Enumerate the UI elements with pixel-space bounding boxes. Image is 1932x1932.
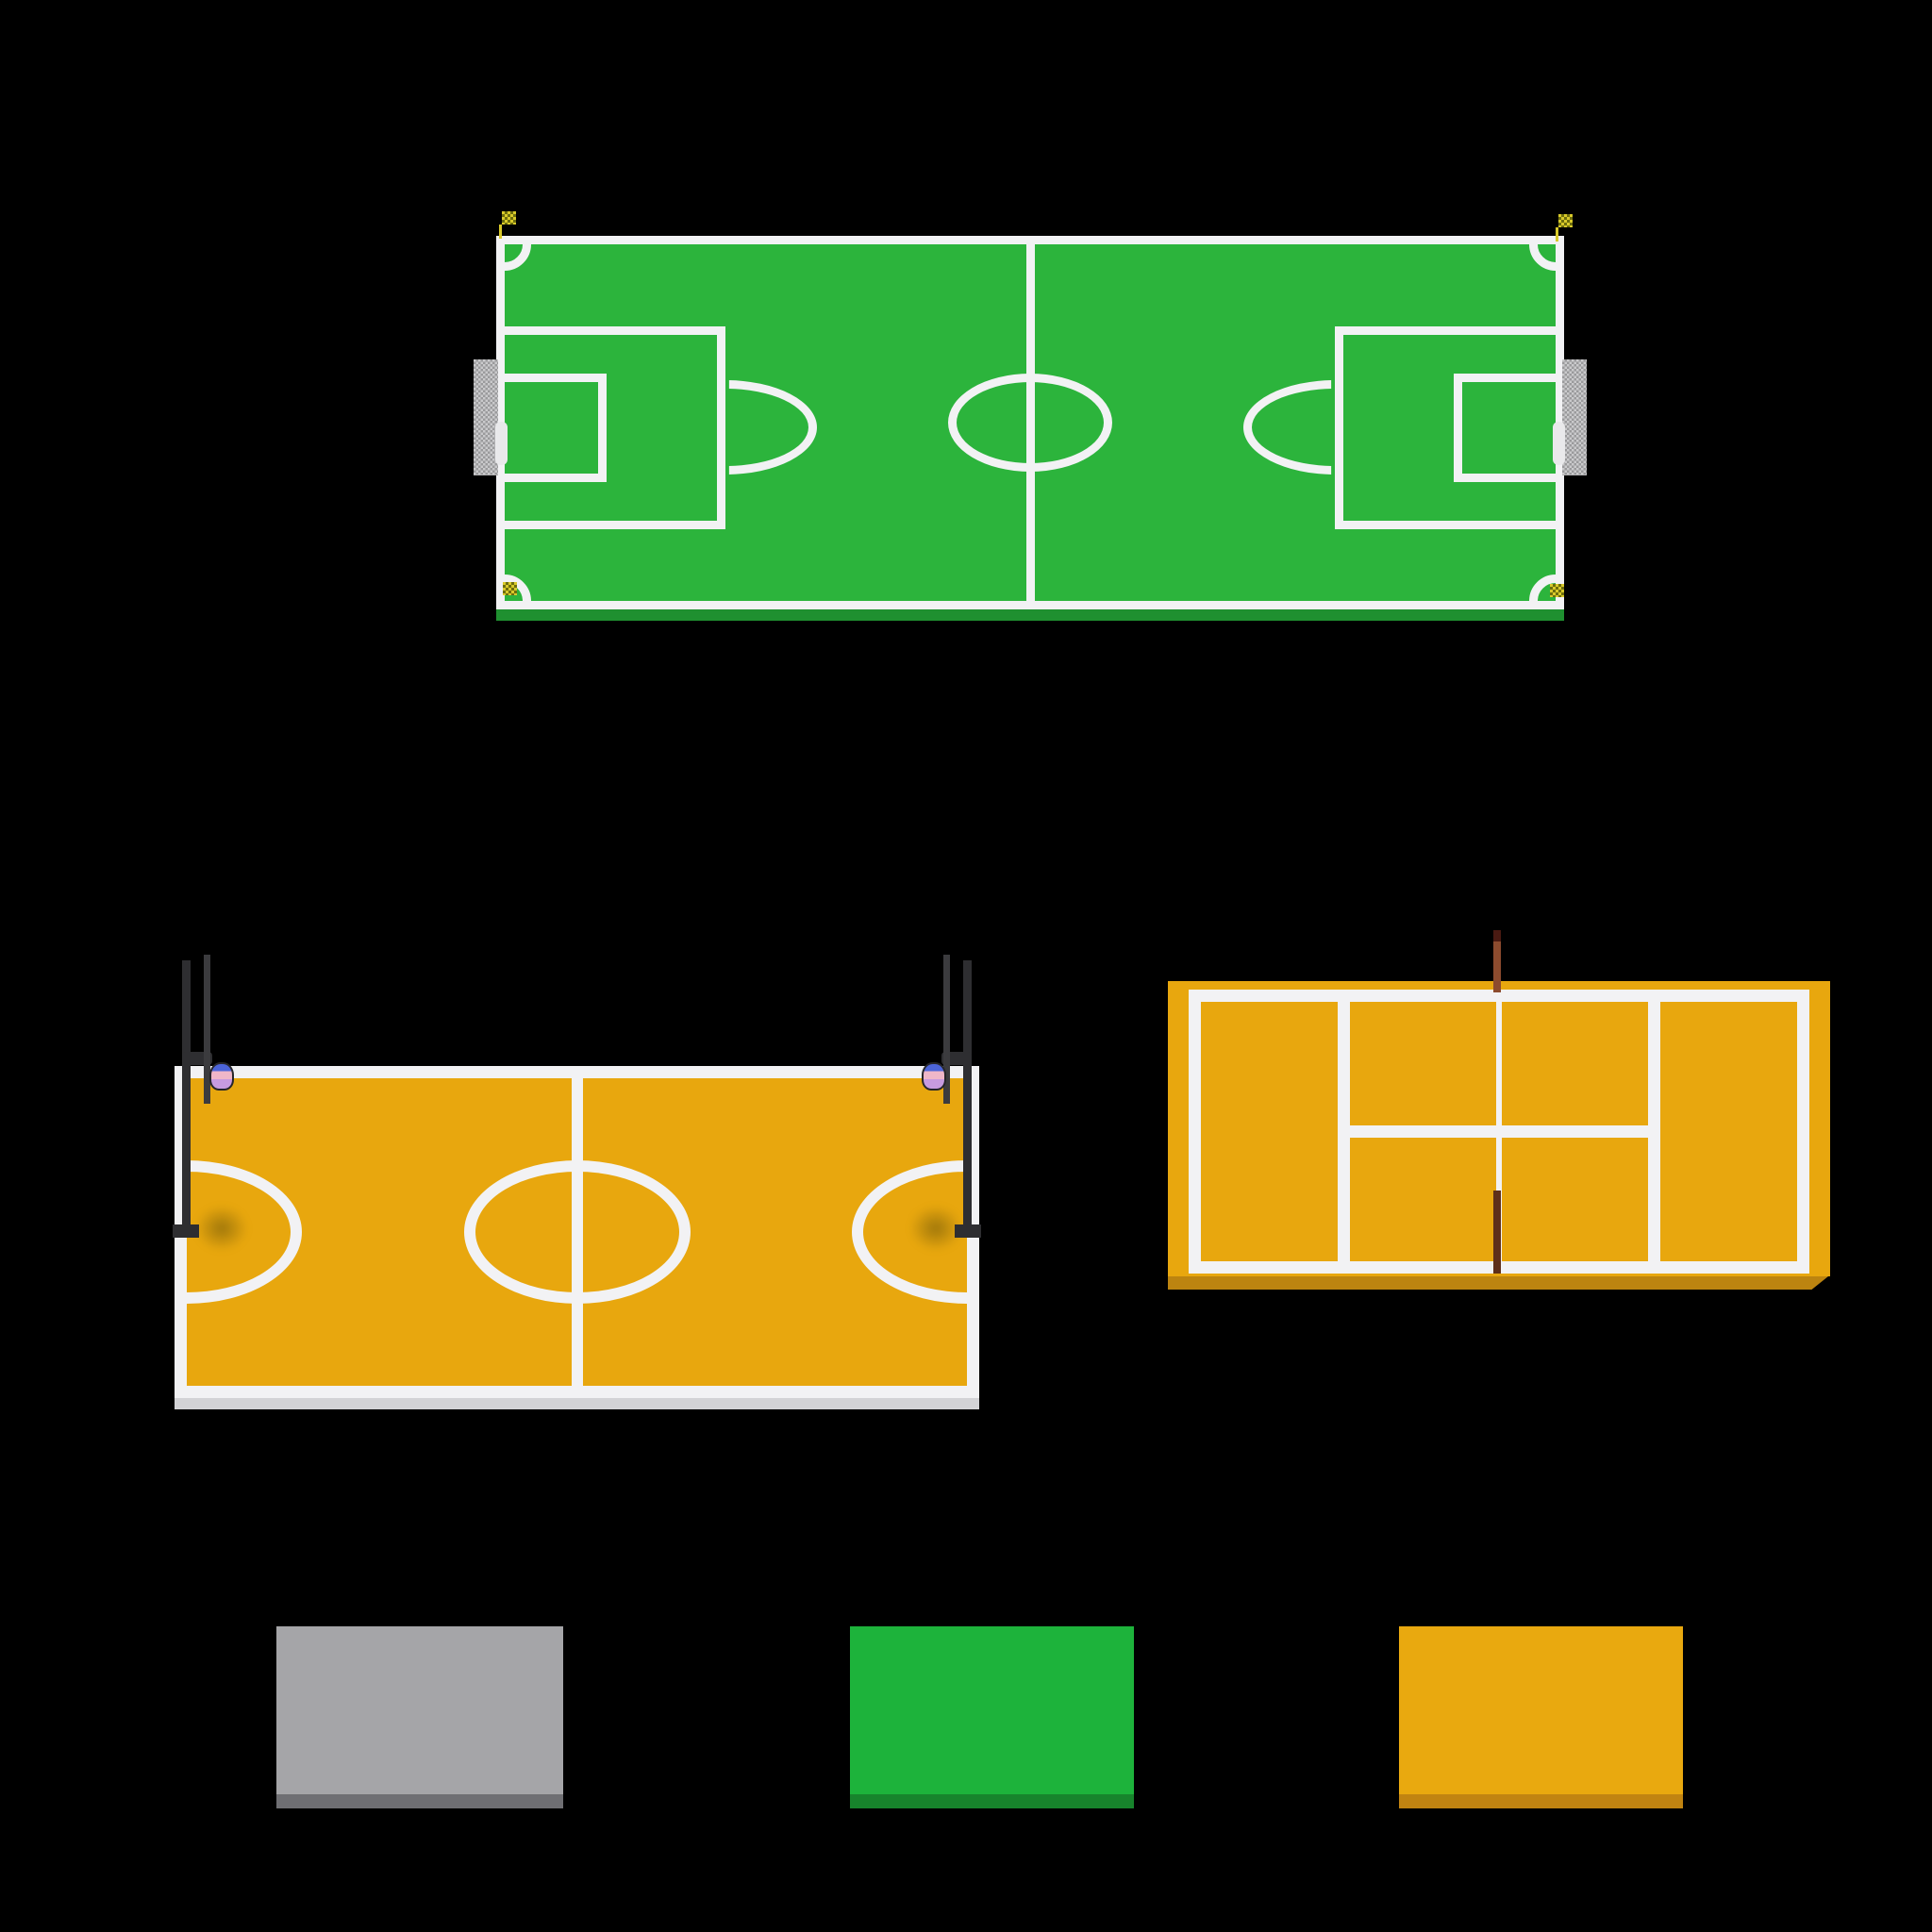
orange-slab (1399, 1626, 1683, 1794)
soccer-corner-arc-top-left (505, 244, 531, 271)
corner-flag-top-right (1558, 214, 1573, 227)
corner-flag-pole-top-right (1556, 227, 1558, 241)
basketball-court (175, 1066, 979, 1398)
soccer-goal-box-right (1454, 374, 1556, 482)
soccer-goal-crossbar-left (495, 422, 508, 465)
corner-flag-bottom-left (503, 582, 517, 595)
hoop-pole-right (963, 960, 972, 1236)
soccer-goal-box-left (505, 374, 607, 482)
basketball-center-circle (464, 1160, 691, 1304)
corner-flag-pole-top-left (499, 225, 502, 239)
soccer-corner-arc-top-right (1529, 244, 1556, 271)
gray-slab (276, 1626, 563, 1794)
soccer-pitch-surface (505, 244, 1556, 601)
soccer-goal-net-right (1562, 359, 1587, 475)
render-canvas (0, 0, 1932, 1932)
tennis-service-line-left (1338, 1002, 1350, 1261)
basketball-court-side-face (175, 1398, 979, 1409)
hoop-pole-left (182, 960, 191, 1236)
hoop-pole-base-right (955, 1224, 981, 1238)
soccer-field-side-face (496, 609, 1564, 621)
soccer-goal-crossbar-right (1553, 422, 1565, 465)
tennis-net-post-bottom (1493, 1191, 1501, 1274)
green-slab (850, 1626, 1134, 1794)
gray-slab-side-face (276, 1794, 563, 1808)
tennis-court-side-face (1168, 1276, 1828, 1290)
orange-slab-side-face (1399, 1794, 1683, 1808)
corner-flag-top-left (502, 211, 516, 225)
green-slab-side-face (850, 1794, 1134, 1808)
basketball-hoop-net-right (922, 1062, 946, 1091)
soccer-center-circle (948, 374, 1112, 472)
basketball-court-surface (187, 1078, 967, 1386)
basketball-hoop-net-left (209, 1062, 234, 1091)
tennis-net-post-tip (1493, 930, 1501, 941)
tennis-service-line-right (1648, 1002, 1660, 1261)
corner-flag-bottom-right (1550, 584, 1564, 597)
hoop-pole-base-left (173, 1224, 199, 1238)
soccer-field (496, 236, 1564, 609)
